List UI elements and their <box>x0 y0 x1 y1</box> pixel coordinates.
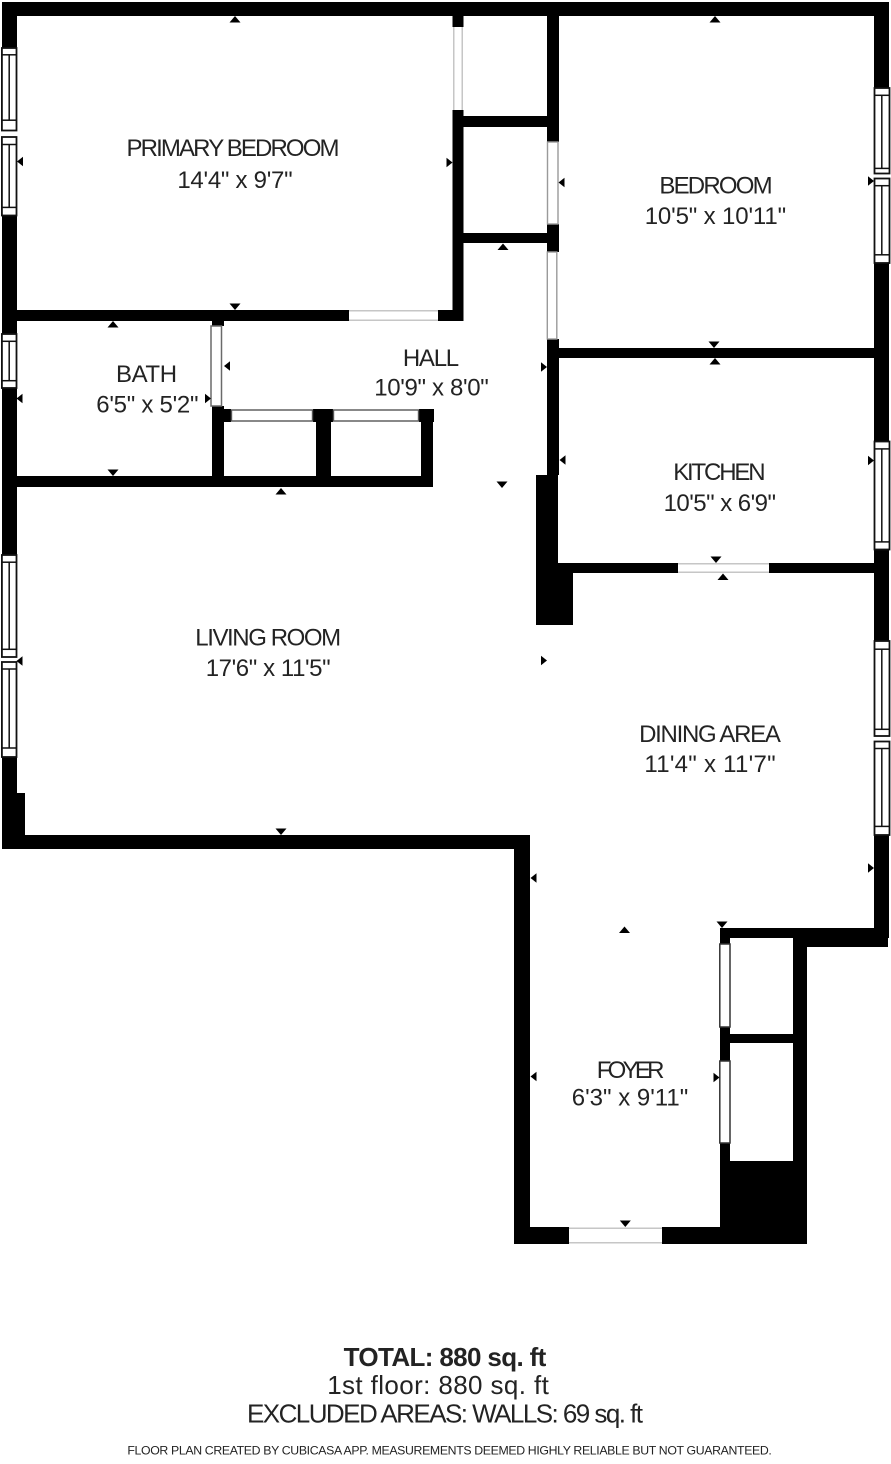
svg-text:HALL: HALL <box>403 345 459 372</box>
svg-text:DINING AREA: DINING AREA <box>639 721 781 748</box>
svg-text:11'4" x 11'7": 11'4" x 11'7" <box>644 751 775 778</box>
svg-text:6'5" x 5'2": 6'5" x 5'2" <box>96 391 198 418</box>
svg-text:FLOOR PLAN CREATED BY CUBICASA: FLOOR PLAN CREATED BY CUBICASA APP. MEAS… <box>127 1444 771 1458</box>
svg-text:LIVING ROOM: LIVING ROOM <box>195 625 341 652</box>
svg-text:10'5" x 6'9": 10'5" x 6'9" <box>664 490 776 517</box>
svg-text:BEDROOM: BEDROOM <box>659 173 772 200</box>
svg-text:10'9" x 8'0": 10'9" x 8'0" <box>374 374 489 401</box>
svg-text:EXCLUDED AREAS: WALLS: 69 sq.: EXCLUDED AREAS: WALLS: 69 sq. ft <box>247 1398 644 1428</box>
svg-text:FOYER: FOYER <box>597 1057 665 1084</box>
svg-text:1st floor: 880 sq. ft: 1st floor: 880 sq. ft <box>327 1370 549 1400</box>
svg-text:TOTAL: 880 sq. ft: TOTAL: 880 sq. ft <box>344 1342 547 1372</box>
svg-text:BATH: BATH <box>116 361 177 388</box>
svg-text:6'3" x 9'11": 6'3" x 9'11" <box>572 1084 689 1111</box>
svg-text:10'5" x 10'11": 10'5" x 10'11" <box>645 203 786 230</box>
svg-text:14'4" x 9'7": 14'4" x 9'7" <box>177 167 292 194</box>
svg-text:KITCHEN: KITCHEN <box>673 459 765 486</box>
svg-text:PRIMARY BEDROOM: PRIMARY BEDROOM <box>127 135 340 162</box>
svg-text:17'6" x 11'5": 17'6" x 11'5" <box>206 655 331 682</box>
